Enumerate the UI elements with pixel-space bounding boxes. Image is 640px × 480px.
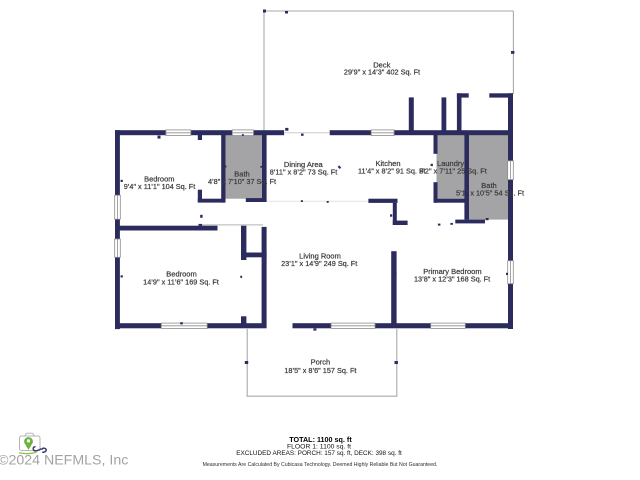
svg-text:4’8" x 7’10" 37 Sq. Ft: 4’8" x 7’10" 37 Sq. Ft [208, 177, 276, 186]
svg-text:©2024 NEFMLS, Inc: ©2024 NEFMLS, Inc [0, 452, 128, 468]
svg-text:5’1" x 10’5" 54 Sq. Ft: 5’1" x 10’5" 54 Sq. Ft [456, 188, 524, 197]
svg-text:13’8" x 12’3" 168 Sq. Ft: 13’8" x 12’3" 168 Sq. Ft [414, 275, 490, 284]
svg-text:23’1" x 14’9" 249 Sq. Ft: 23’1" x 14’9" 249 Sq. Ft [281, 259, 357, 268]
svg-text:9’4" x 11’1" 104 Sq. Ft: 9’4" x 11’1" 104 Sq. Ft [124, 182, 196, 191]
svg-text:EXCLUDED AREAS: PORCH: 157 sq.: EXCLUDED AREAS: PORCH: 157 sq. ft, DECK:… [236, 450, 402, 457]
svg-text:8’11" x 8’2" 73 Sq. Ft: 8’11" x 8’2" 73 Sq. Ft [270, 167, 338, 176]
svg-text:8’2" x 7’11" 25 Sq. Ft: 8’2" x 7’11" 25 Sq. Ft [419, 166, 487, 175]
svg-text:TOTAL: 1100 sq. ft: TOTAL: 1100 sq. ft [289, 435, 352, 444]
svg-text:29’9" x 14’3" 402 Sq. Ft: 29’9" x 14’3" 402 Sq. Ft [344, 68, 420, 77]
svg-text:Measurements Are Calculated By: Measurements Are Calculated By Cubicasa … [203, 462, 438, 468]
svg-text:14’9" x 11’6" 169 Sq. Ft: 14’9" x 11’6" 169 Sq. Ft [143, 277, 219, 286]
svg-text:18’5" x 8’6" 157 Sq. Ft: 18’5" x 8’6" 157 Sq. Ft [284, 366, 356, 375]
svg-text:11’4" x 8’2" 91 Sq. Ft: 11’4" x 8’2" 91 Sq. Ft [358, 166, 426, 175]
